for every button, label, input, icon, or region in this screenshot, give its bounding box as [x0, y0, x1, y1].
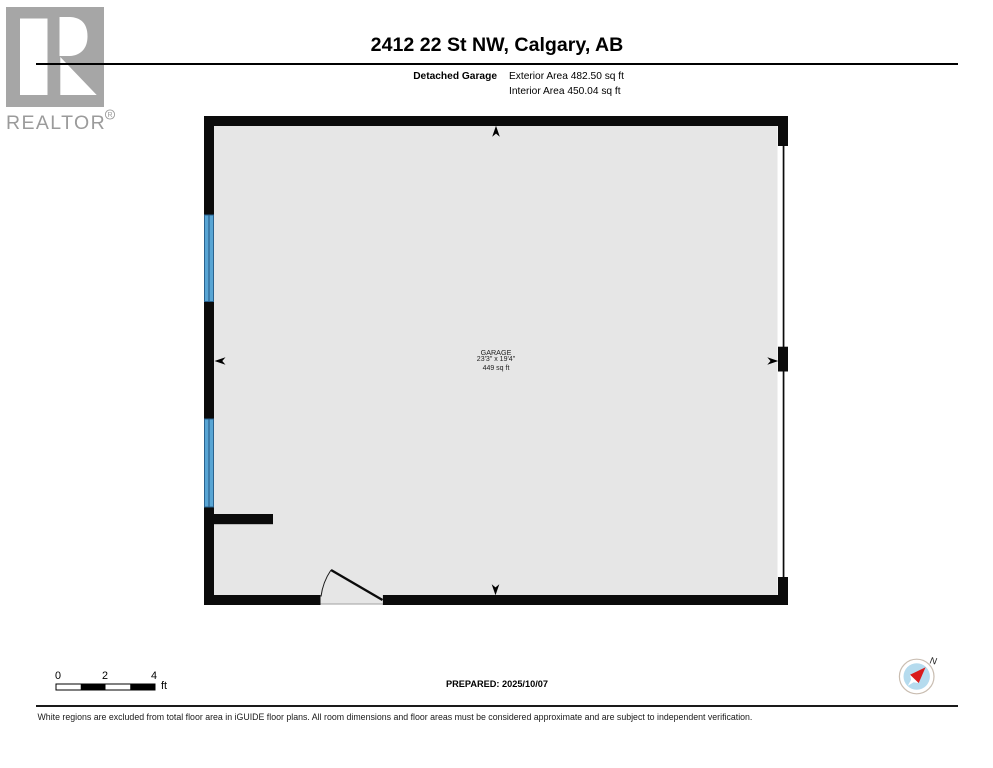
- svg-text:N: N: [929, 656, 938, 668]
